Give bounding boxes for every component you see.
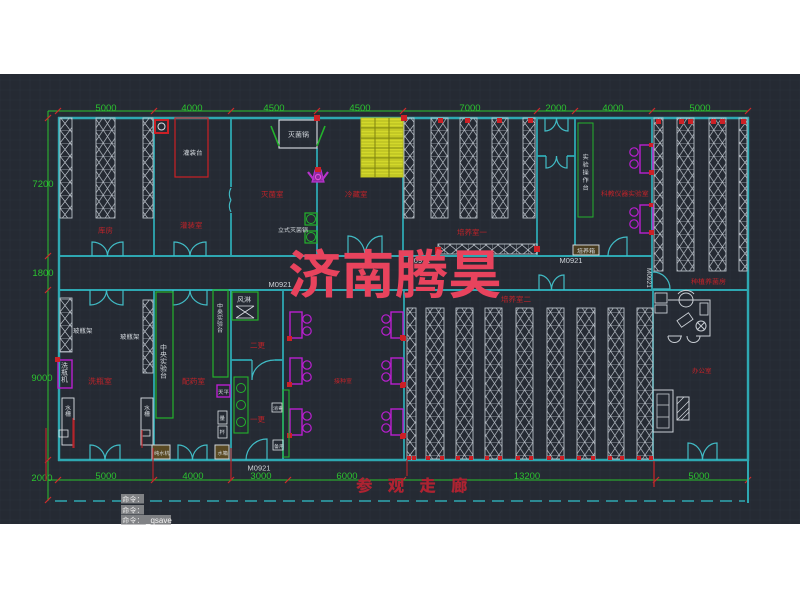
svg-text:2000: 2000 (545, 103, 566, 114)
svg-text:4000: 4000 (182, 471, 203, 482)
svg-text:7000: 7000 (459, 103, 480, 114)
svg-text:5000: 5000 (95, 471, 116, 482)
svg-text:M0921: M0921 (269, 280, 292, 289)
svg-text:4000: 4000 (181, 103, 202, 114)
svg-text:1800: 1800 (32, 268, 53, 279)
svg-text:4500: 4500 (349, 103, 370, 114)
svg-text:5000: 5000 (688, 471, 709, 482)
svg-text:3000: 3000 (250, 471, 271, 482)
svg-text:7200: 7200 (32, 179, 53, 190)
svg-text:M0921: M0921 (645, 268, 652, 288)
svg-text:6000: 6000 (336, 471, 357, 482)
svg-text:M0921: M0921 (560, 256, 583, 265)
svg-text:13200: 13200 (514, 471, 540, 482)
svg-text:4000: 4000 (602, 103, 623, 114)
svg-text:_qsave: _qsave (145, 516, 172, 525)
svg-text:2000: 2000 (31, 473, 52, 484)
svg-text:5000: 5000 (689, 103, 710, 114)
svg-text:9000: 9000 (31, 373, 52, 384)
svg-text:5000: 5000 (95, 103, 116, 114)
svg-text:4500: 4500 (263, 103, 284, 114)
svg-text:M0921: M0921 (248, 464, 271, 473)
